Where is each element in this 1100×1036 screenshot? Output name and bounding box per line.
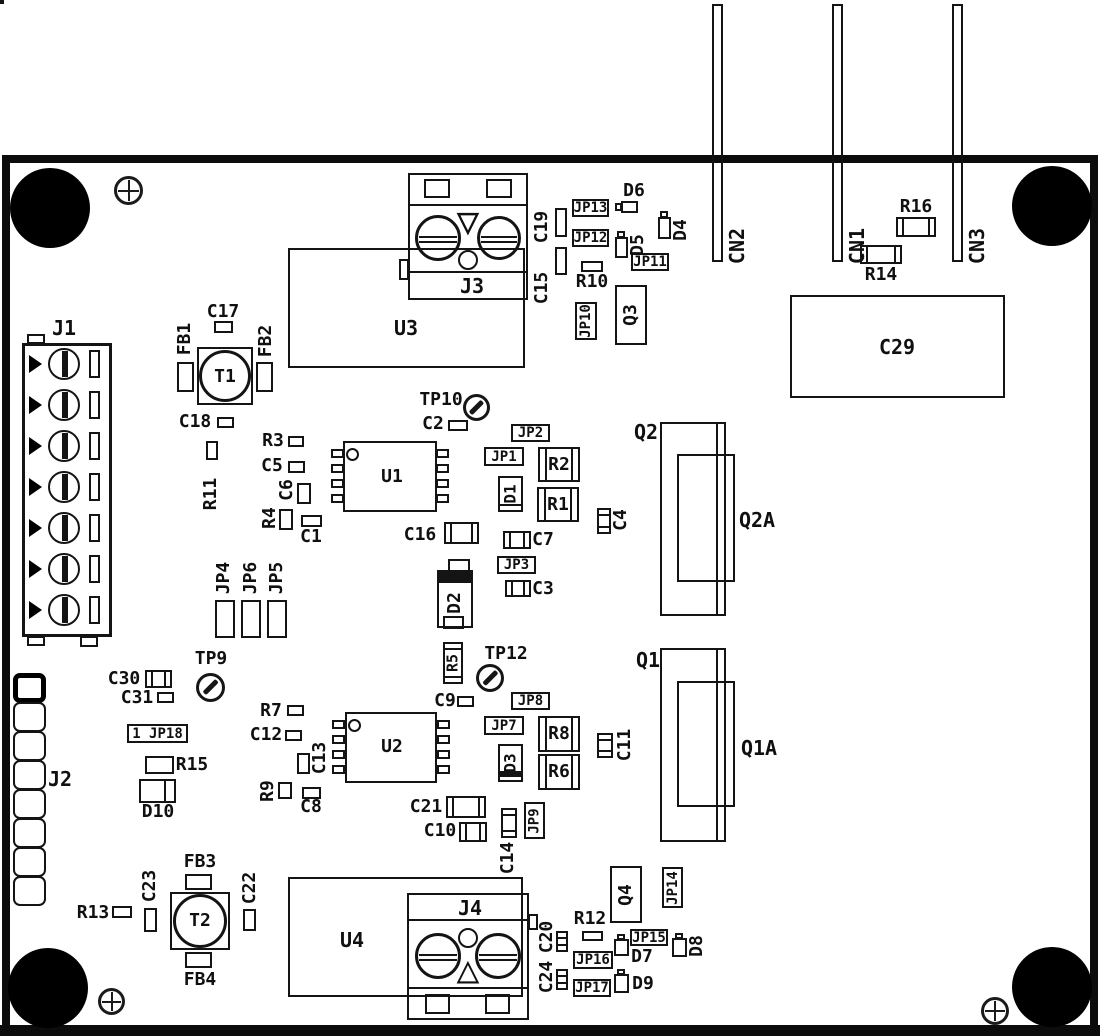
ref-jp13: JP13 xyxy=(574,201,608,215)
ref-c19: C19 xyxy=(533,211,551,244)
ref-d1: D1 xyxy=(502,484,518,503)
testpoint-tp12 xyxy=(476,664,504,692)
ref-fb3: FB3 xyxy=(184,853,217,871)
ferrite-fb4 xyxy=(185,952,212,968)
j1-screw xyxy=(48,594,80,626)
pcb-silkscreen-drawing: CN2 CN1 CN3 R16 R14 C29 U3 ▽ J3 C19 C15 … xyxy=(0,0,1100,1036)
ref-q4: Q4 xyxy=(617,884,635,906)
mounting-hole-bottom-right xyxy=(1012,947,1092,1027)
jumper-jp18: 1 JP18 xyxy=(127,724,188,743)
j1-screw xyxy=(48,512,80,544)
j1-slot xyxy=(89,432,100,460)
screw-cross-icon xyxy=(981,997,1009,1025)
resistor-r8: R8 xyxy=(538,716,580,752)
jumper-jp3: JP3 xyxy=(497,556,536,574)
jumper-jp4 xyxy=(215,600,235,638)
mounting-hole-top-right xyxy=(1012,166,1092,246)
ref-jp8: JP8 xyxy=(518,694,543,708)
d6-tab xyxy=(615,203,622,211)
ref-d10: D10 xyxy=(142,803,175,821)
diode-d7 xyxy=(614,939,629,956)
ref-jp15: JP15 xyxy=(632,931,666,945)
ref-c10: C10 xyxy=(424,822,457,840)
j1-pin-arrow xyxy=(29,437,42,455)
ref-u3: U3 xyxy=(394,318,418,338)
j1-pin-arrow xyxy=(29,601,42,619)
d4-tab xyxy=(660,211,668,218)
jumper-jp6 xyxy=(241,600,261,638)
ref-u4: U4 xyxy=(340,930,364,950)
ref-jp6: JP6 xyxy=(242,562,260,595)
ferrite-fb3 xyxy=(185,874,212,890)
u2-pin xyxy=(437,720,450,729)
ref-q1: Q1 xyxy=(636,650,660,670)
ref-c30: C30 xyxy=(108,670,141,688)
u1-pin xyxy=(436,479,449,488)
board-edge-left xyxy=(2,155,10,1036)
capacitor-c18 xyxy=(217,417,234,428)
board-edge-bottom xyxy=(0,1025,1100,1036)
j1-tab xyxy=(27,636,45,646)
d3-band xyxy=(500,771,521,777)
ref-c6: C6 xyxy=(278,479,296,501)
ref-q2: Q2 xyxy=(634,422,658,442)
j4-screw-terminal xyxy=(415,933,461,979)
board-edge-top xyxy=(4,155,1096,163)
j3-side-tab xyxy=(399,259,409,280)
jumper-jp10: JP10 xyxy=(575,302,597,340)
ref-c8: C8 xyxy=(300,798,322,816)
ref-r4: R4 xyxy=(261,507,279,529)
jumper-jp17: JP17 xyxy=(573,979,611,997)
ref-r12: R12 xyxy=(574,910,607,928)
resistor-r11 xyxy=(206,441,218,460)
transistor-q3: Q3 xyxy=(615,285,647,345)
ref-r8: R8 xyxy=(548,725,570,743)
ref-r14: R14 xyxy=(865,266,898,284)
j1-tab xyxy=(80,636,98,647)
jumper-jp14: JP14 xyxy=(662,867,683,908)
ref-c4: C4 xyxy=(612,509,630,531)
transistor-q4: Q4 xyxy=(610,866,642,923)
d7-tab xyxy=(617,934,625,940)
ref-d2: D2 xyxy=(446,592,464,614)
u1-pin xyxy=(436,464,449,473)
ref-tp9: TP9 xyxy=(195,650,228,668)
resistor-r7 xyxy=(287,705,304,716)
jumper-jp12: JP12 xyxy=(572,229,609,247)
ref-d9: D9 xyxy=(632,975,654,993)
u2-pin xyxy=(437,750,450,759)
transistor-q1a-pad xyxy=(677,681,735,807)
j2-pin xyxy=(13,731,46,761)
j4-pad xyxy=(485,994,510,1014)
j3-screw-terminal xyxy=(477,216,521,260)
mounting-hole-bottom-left xyxy=(8,948,88,1028)
ref-c2: C2 xyxy=(422,415,444,433)
ref-q3: Q3 xyxy=(622,304,640,326)
ferrite-fb1 xyxy=(177,362,194,392)
ref-c16: C16 xyxy=(404,526,437,544)
capacitor-c7 xyxy=(503,531,531,549)
resistor-r1: R1 xyxy=(537,487,579,522)
ref-jp18: 1 JP18 xyxy=(132,727,183,741)
u1-pin xyxy=(436,494,449,503)
connector-j2-pin1 xyxy=(13,673,46,703)
ref-c11: C11 xyxy=(616,729,634,762)
capacitor-c30 xyxy=(145,670,172,688)
jumper-jp8: JP8 xyxy=(511,692,550,710)
testpoint-tp10 xyxy=(463,394,490,421)
capacitor-c15 xyxy=(555,247,567,275)
ref-c7: C7 xyxy=(532,531,554,549)
ref-u2: U2 xyxy=(381,738,403,756)
j1-screw xyxy=(48,471,80,503)
diode-d1: D1 xyxy=(498,476,523,512)
ref-fb4: FB4 xyxy=(184,971,217,989)
ref-c18: C18 xyxy=(179,413,212,431)
j3-pad xyxy=(424,179,450,198)
ref-c29: C29 xyxy=(879,337,915,357)
transistor-q2a-pad xyxy=(677,454,735,582)
ref-j3: J3 xyxy=(460,276,484,296)
jumper-jp9: JP9 xyxy=(524,802,545,839)
capacitor-c22 xyxy=(243,909,256,931)
ref-q1a: Q1A xyxy=(741,738,777,758)
ref-c21: C21 xyxy=(410,798,443,816)
ref-c20: C20 xyxy=(538,921,556,954)
ref-j2: J2 xyxy=(48,769,72,789)
j1-slot xyxy=(89,596,100,624)
ref-r16: R16 xyxy=(900,198,933,216)
ref-c14: C14 xyxy=(499,842,517,875)
ref-jp9: JP9 xyxy=(528,808,542,833)
resistor-r13 xyxy=(112,906,132,918)
j3-pad xyxy=(486,179,512,198)
ref-fb1: FB1 xyxy=(176,323,194,356)
diode-d10 xyxy=(139,779,176,803)
ref-tp12: TP12 xyxy=(484,645,527,663)
resistor-r12 xyxy=(582,931,603,941)
capacitor-c14 xyxy=(501,808,517,838)
capacitor-c16 xyxy=(444,522,479,544)
j3-divider xyxy=(408,271,528,273)
ref-r3: R3 xyxy=(262,432,284,450)
pin-cn2 xyxy=(712,4,723,262)
triangle-up-icon: △ xyxy=(457,950,480,988)
resistor-r2: R2 xyxy=(538,447,580,482)
ref-jp4: JP4 xyxy=(215,562,233,595)
ref-c17: C17 xyxy=(207,303,240,321)
ref-jp1: JP1 xyxy=(491,450,516,464)
j1-pin-arrow xyxy=(29,355,42,373)
capacitor-c6 xyxy=(297,483,311,504)
j1-slot xyxy=(89,350,100,378)
j2-pin xyxy=(13,760,46,790)
diode-d9 xyxy=(614,974,629,993)
u2-pin xyxy=(437,735,450,744)
j1-pin-arrow xyxy=(29,519,42,537)
j1-slot xyxy=(89,473,100,501)
board-edge-right xyxy=(1090,155,1098,1036)
j3-screw-terminal xyxy=(415,215,461,261)
j1-slot xyxy=(89,514,100,542)
ref-r5: R5 xyxy=(446,654,461,672)
ref-jp2: JP2 xyxy=(518,426,543,440)
ferrite-fb2 xyxy=(256,362,273,392)
ref-jp10: JP10 xyxy=(579,304,593,338)
j2-pin xyxy=(13,847,46,877)
ref-jp7: JP7 xyxy=(491,719,516,733)
ref-c9: C9 xyxy=(434,692,456,710)
ref-tp10: TP10 xyxy=(419,391,462,409)
j1-pin-arrow xyxy=(29,560,42,578)
capacitor-c4 xyxy=(597,508,611,534)
ref-r13: R13 xyxy=(77,904,110,922)
u2-pin xyxy=(332,735,345,744)
j1-screw xyxy=(48,389,80,421)
u2-pin xyxy=(332,750,345,759)
capacitor-c12 xyxy=(285,730,302,741)
j2-pin xyxy=(13,702,46,732)
capacitor-c17 xyxy=(214,321,233,333)
d10-band xyxy=(164,779,166,803)
capacitor-c19 xyxy=(555,208,567,237)
testpoint-tp9 xyxy=(196,673,225,702)
ref-c13: C13 xyxy=(311,742,329,775)
u1-pin xyxy=(331,479,344,488)
capacitor-c3 xyxy=(505,580,531,597)
j2-pin xyxy=(13,876,46,906)
ref-c3: C3 xyxy=(532,580,554,598)
jumper-jp5 xyxy=(267,600,287,638)
capacitor-c10 xyxy=(459,822,487,842)
diode-d6 xyxy=(621,201,638,213)
ref-r6: R6 xyxy=(548,763,570,781)
jumper-jp2: JP2 xyxy=(511,424,550,442)
jumper-jp15: JP15 xyxy=(630,929,668,946)
j4-pad xyxy=(425,994,450,1014)
ref-c23: C23 xyxy=(141,870,159,903)
j2-pin xyxy=(13,789,46,819)
capacitor-c2 xyxy=(448,420,468,431)
d2-tab xyxy=(443,616,464,629)
j1-screw xyxy=(48,430,80,462)
capacitor-c9 xyxy=(457,696,474,707)
pin-cn1 xyxy=(832,4,843,262)
mounting-hole-top-left xyxy=(10,168,90,248)
j1-screw xyxy=(48,348,80,380)
screw-cross-icon xyxy=(114,176,143,205)
ref-j1: J1 xyxy=(52,318,76,338)
ref-r10: R10 xyxy=(576,273,609,291)
j1-slot xyxy=(89,555,100,583)
ref-jp16: JP16 xyxy=(576,953,610,967)
jumper-jp13: JP13 xyxy=(572,199,609,217)
jumper-jp16: JP16 xyxy=(573,951,613,969)
resistor-r16 xyxy=(896,217,936,237)
j2-pin xyxy=(13,818,46,848)
capacitor-c11 xyxy=(597,733,613,758)
d5-tab xyxy=(617,231,625,238)
ref-jp5: JP5 xyxy=(268,562,286,595)
resistor-r9 xyxy=(278,782,292,799)
ref-c5: C5 xyxy=(261,457,283,475)
ref-d3: D3 xyxy=(502,753,518,772)
u2-pin xyxy=(332,720,345,729)
resistor-r14 xyxy=(860,245,902,264)
ref-r7: R7 xyxy=(260,702,282,720)
d1-band xyxy=(500,504,521,506)
j3-hole xyxy=(458,250,478,270)
ref-c12: C12 xyxy=(250,726,283,744)
u1-pin xyxy=(331,494,344,503)
ref-d7: D7 xyxy=(631,948,653,966)
ref-r11: R11 xyxy=(202,478,220,511)
resistor-r4 xyxy=(279,509,293,530)
resistor-r3 xyxy=(288,436,304,447)
ref-u1: U1 xyxy=(381,468,403,486)
ref-c22: C22 xyxy=(241,872,259,905)
ref-cn3: CN3 xyxy=(967,228,987,264)
capacitor-c5 xyxy=(288,461,305,473)
capacitor-c23 xyxy=(144,908,157,932)
ref-c1: C1 xyxy=(300,528,322,546)
ref-fb2: FB2 xyxy=(257,325,275,358)
j4-hole xyxy=(458,928,478,948)
ref-q2a: Q2A xyxy=(739,510,775,530)
j1-pin-arrow xyxy=(29,478,42,496)
resistor-r2 xyxy=(0,0,4,4)
capacitor-c13 xyxy=(297,753,310,774)
u1-pin xyxy=(436,449,449,458)
capacitor-c21 xyxy=(446,796,486,818)
resistor-r15 xyxy=(145,756,174,774)
ref-d6: D6 xyxy=(623,182,645,200)
u2-pin xyxy=(437,765,450,774)
ref-cn2: CN2 xyxy=(727,228,747,264)
ref-r1: R1 xyxy=(547,496,569,514)
ref-jp3: JP3 xyxy=(504,558,529,572)
pin-cn3 xyxy=(952,4,963,262)
ref-c31: C31 xyxy=(121,689,154,707)
j4-screw-terminal xyxy=(475,933,521,979)
d9-tab xyxy=(617,969,625,975)
u1-pin xyxy=(331,464,344,473)
ref-r2: R2 xyxy=(548,456,570,474)
resistor-r6: R6 xyxy=(538,754,580,790)
ref-jp17: JP17 xyxy=(575,981,609,995)
ref-d4: D4 xyxy=(672,219,690,241)
ref-d5: D5 xyxy=(629,234,647,256)
ref-t1: T1 xyxy=(214,368,236,386)
ref-jp11: JP11 xyxy=(633,255,667,269)
ref-c24: C24 xyxy=(538,961,556,994)
j1-slot xyxy=(89,391,100,419)
capacitor-c31 xyxy=(157,692,174,703)
ref-c15: C15 xyxy=(533,272,551,305)
screw-cross-icon xyxy=(98,988,125,1015)
ref-jp14: JP14 xyxy=(666,871,680,905)
ref-j4: J4 xyxy=(458,898,482,918)
d8-tab xyxy=(675,933,683,939)
ref-jp12: JP12 xyxy=(574,231,608,245)
ref-r9: R9 xyxy=(259,780,277,802)
u1-pin1-mark xyxy=(346,448,359,461)
u2-pin xyxy=(332,765,345,774)
u1-pin xyxy=(331,449,344,458)
u2-pin1-mark xyxy=(348,719,361,732)
triangle-down-icon: ▽ xyxy=(457,202,480,240)
ref-r15: R15 xyxy=(176,756,209,774)
diode-d8 xyxy=(672,938,687,957)
ref-t2: T2 xyxy=(189,912,211,930)
jumper-jp1: JP1 xyxy=(484,447,524,466)
j1-pin-arrow xyxy=(29,396,42,414)
j1-screw xyxy=(48,553,80,585)
capacitor-c20 xyxy=(556,931,568,952)
d2-polarity-band xyxy=(439,572,471,583)
capacitor-c24 xyxy=(556,969,568,990)
ref-d8: D8 xyxy=(688,935,706,957)
jumper-jp7: JP7 xyxy=(484,716,524,735)
